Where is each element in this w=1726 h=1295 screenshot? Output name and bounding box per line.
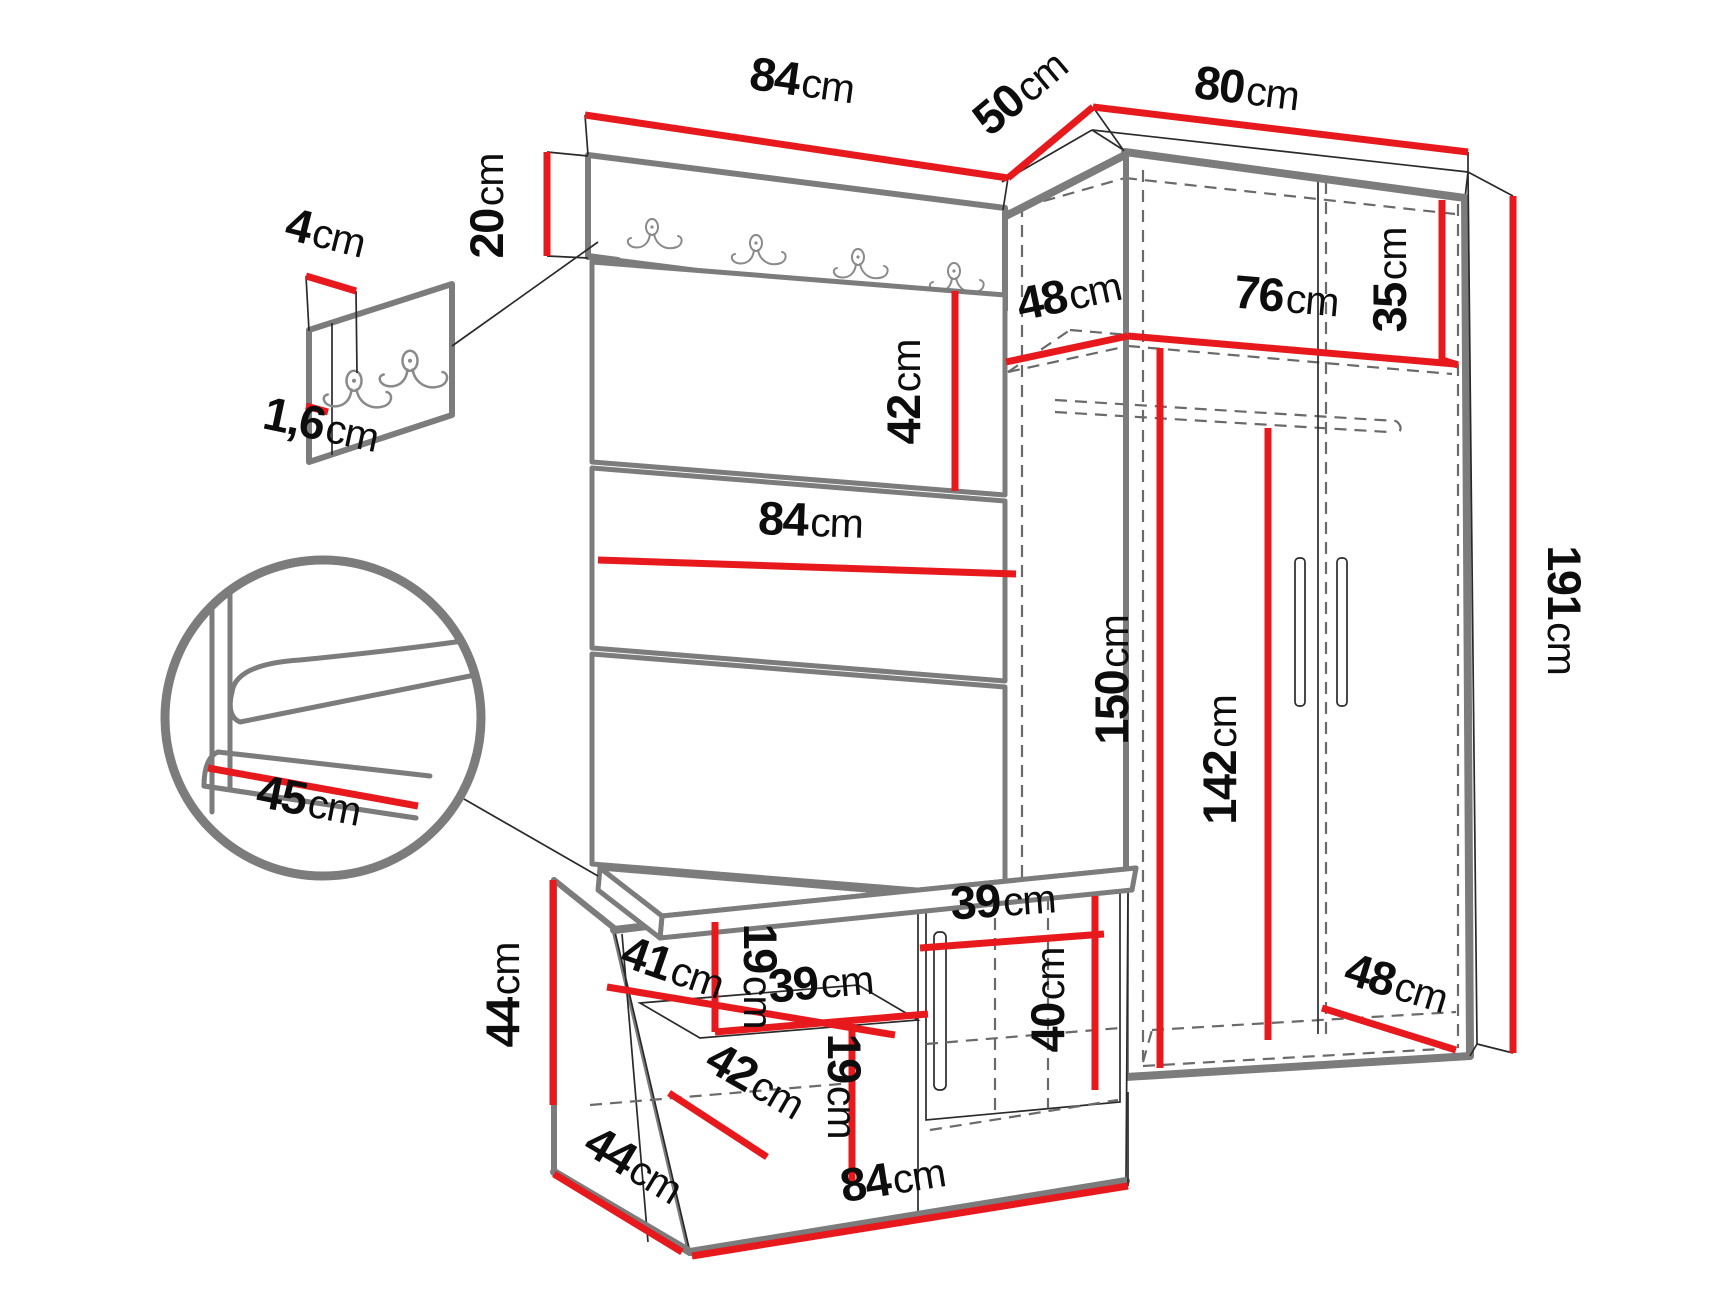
dim-label-bench-height: 44cm [476,943,529,1048]
upholstered-panel-1 [592,262,1005,495]
dim-label-panel-width-middle: 84cm [757,491,864,548]
dim-label-hook-panel-height: 20cm [460,154,513,259]
dim-label-wardrobe-height: 191cm [1538,545,1591,675]
dim-label-door-height: 142cm [1193,695,1246,825]
dim-label-bench-lower-compartment-height: 19cm [818,1034,871,1139]
dim-label-hook-board-width: 4cm [281,197,372,268]
dim-label-wardrobe-width: 80cm [1192,55,1303,120]
dim-label-top-compartment-height: 35cm [1363,228,1416,333]
dim-label-panel-to-wardrobe-depth: 50cm [962,37,1076,145]
diagram-canvas: 84cm 50cm 80cm 20cm 4cm 1,6cm 42cm 84cm … [0,0,1726,1295]
dim-label-interior-height: 150cm [1085,615,1138,745]
dim-line-hook-board-width [306,276,356,291]
upholstered-panel-3 [592,654,1005,897]
seat-detail-circle [165,560,598,876]
detail-leader-line [464,799,598,876]
dim-label-top-panel-width: 84cm [747,46,858,113]
upholstered-wall-panels [592,262,1005,897]
furniture-dimension-diagram: 84cm 50cm 80cm 20cm 4cm 1,6cm 42cm 84cm … [0,0,1726,1295]
dim-label-upper-panel-height: 42cm [877,340,930,445]
dim-label-bench-door-height: 40cm [1021,948,1074,1053]
